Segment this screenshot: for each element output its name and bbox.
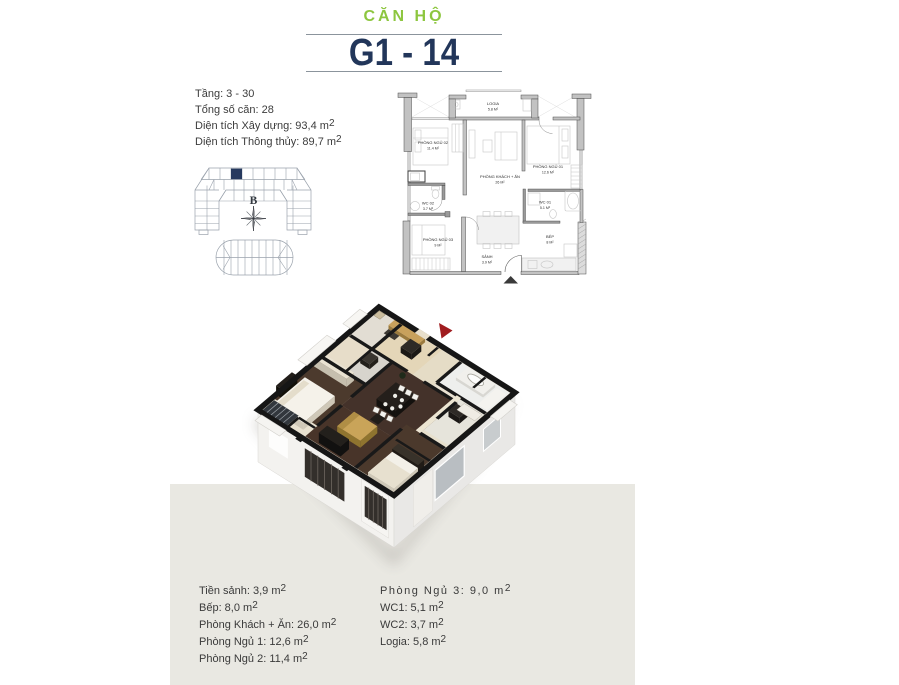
svg-text:B: B — [250, 195, 258, 207]
svg-text:9 M²: 9 M² — [434, 244, 442, 248]
svg-text:BẾP: BẾP — [546, 234, 554, 239]
svg-text:11.4 M²: 11.4 M² — [427, 147, 440, 151]
svg-text:PHÒNG KHÁCH + ĂN: PHÒNG KHÁCH + ĂN — [480, 174, 520, 179]
svg-text:PHÒNG NGỦ 01: PHÒNG NGỦ 01 — [533, 164, 564, 169]
svg-text:SẢNH: SẢNH — [481, 254, 492, 259]
svg-text:8 M²: 8 M² — [546, 241, 554, 245]
svg-text:PHÒNG NGỦ 02: PHÒNG NGỦ 02 — [418, 140, 449, 145]
svg-text:WC 02: WC 02 — [422, 201, 435, 206]
svg-text:3.9 M²: 3.9 M² — [482, 261, 493, 265]
svg-text:3.7 M²: 3.7 M² — [423, 207, 434, 211]
svg-text:12.6 M²: 12.6 M² — [542, 171, 555, 175]
svg-text:5.1 M²: 5.1 M² — [540, 206, 551, 210]
svg-text:26 M²: 26 M² — [495, 181, 505, 185]
svg-text:5.8 M²: 5.8 M² — [488, 108, 499, 112]
svg-text:PHÒNG NGỦ 03: PHÒNG NGỦ 03 — [423, 237, 454, 242]
svg-text:LOGIA: LOGIA — [487, 101, 500, 106]
svg-text:WC 01: WC 01 — [539, 200, 552, 205]
